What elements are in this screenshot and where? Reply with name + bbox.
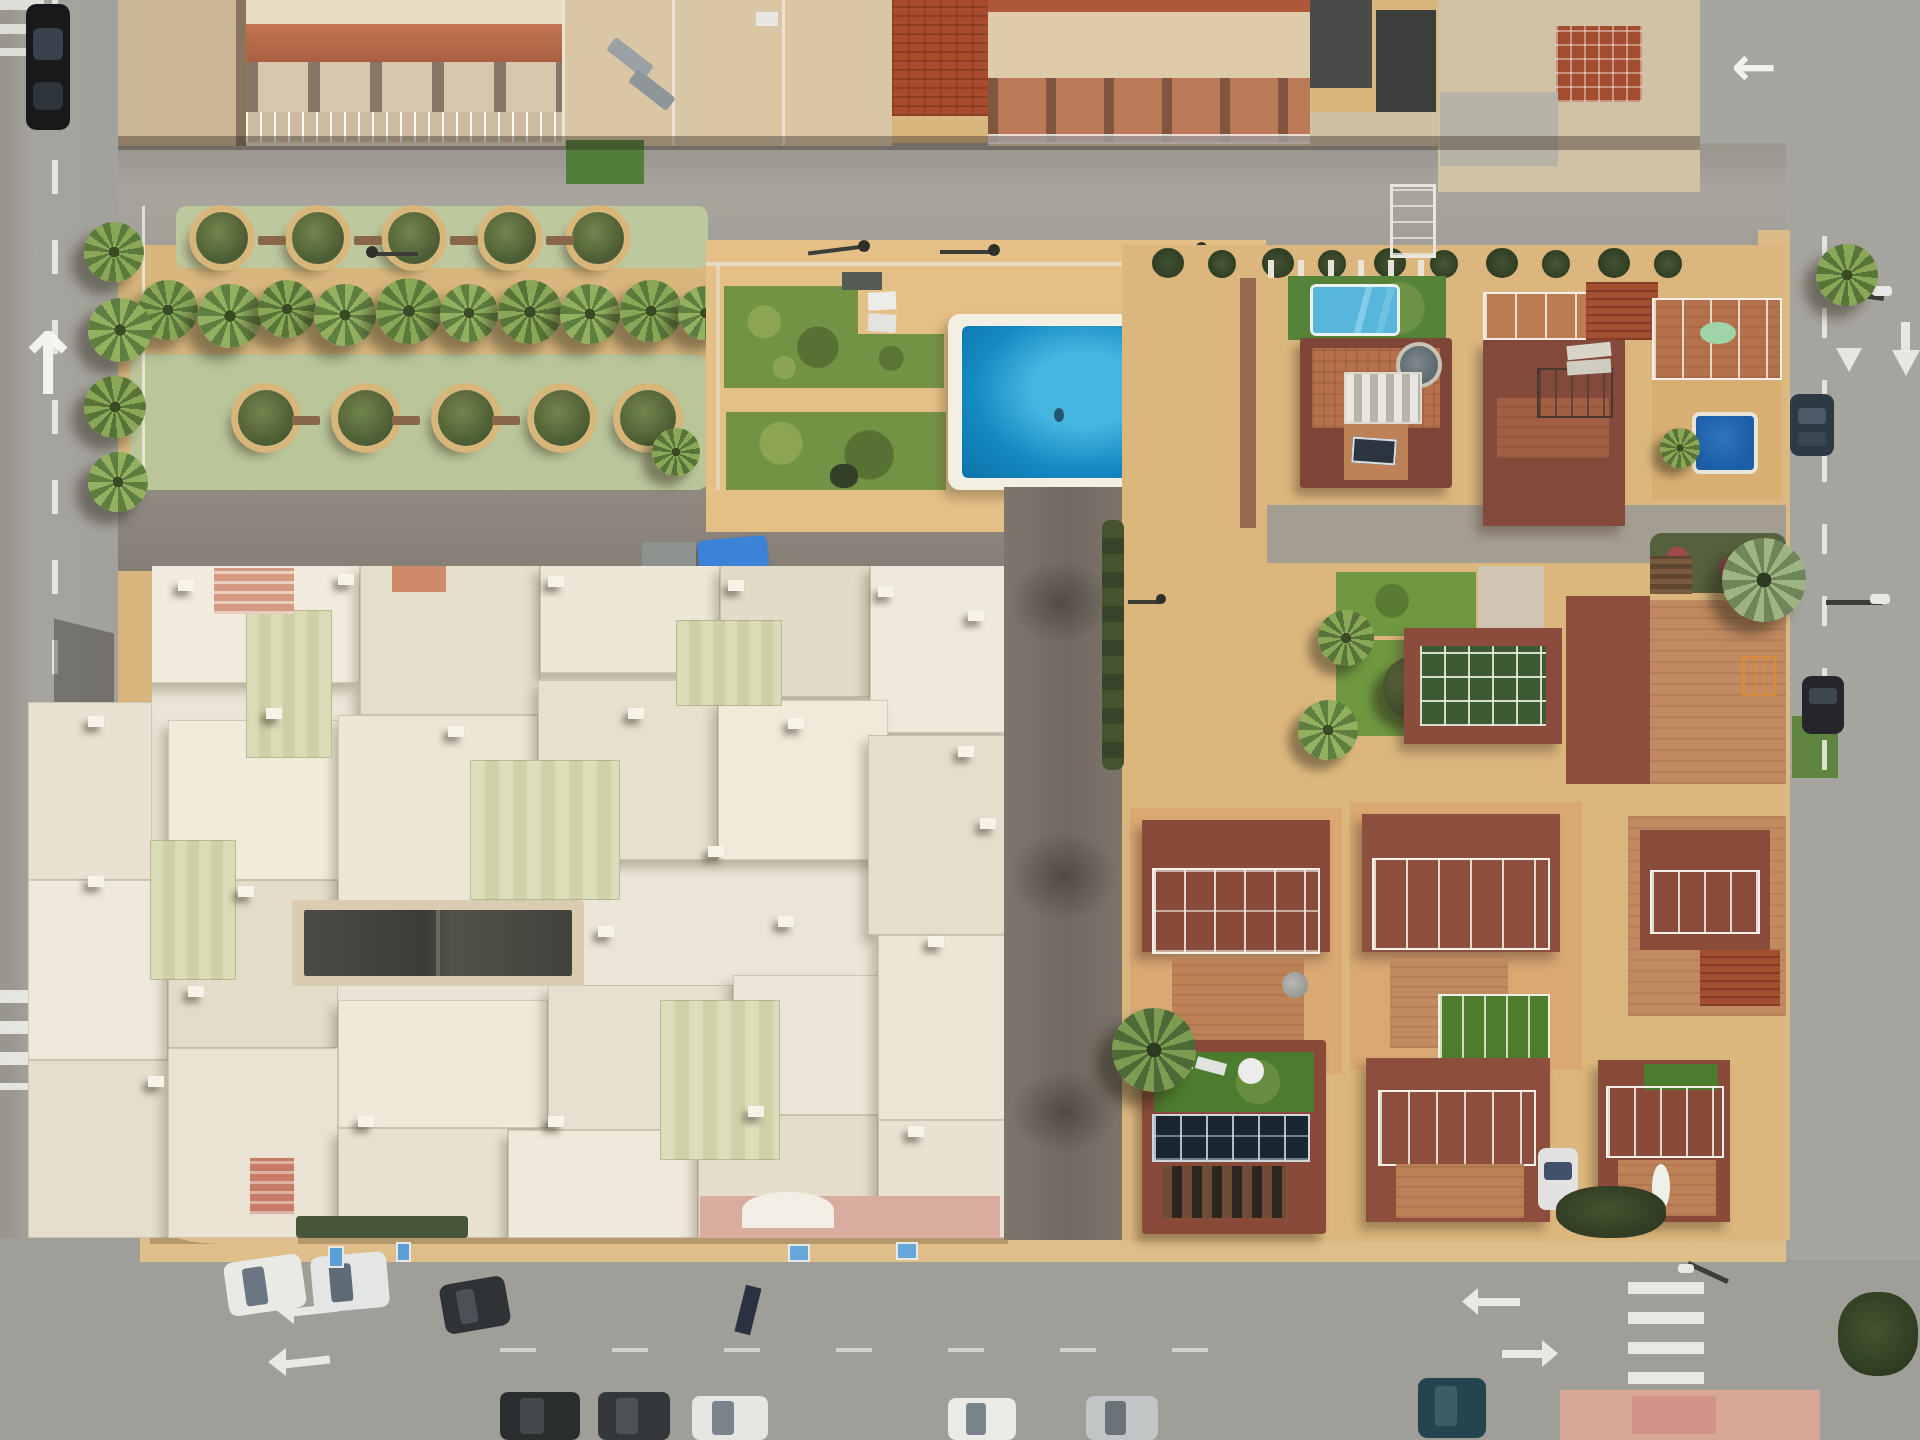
rooftop-terrace-top	[562, 0, 892, 146]
rooftop-ac-unit	[756, 12, 778, 26]
car-glass	[1798, 408, 1826, 424]
palm-tree	[652, 428, 700, 476]
car-dark-right-2	[1802, 676, 1844, 734]
roof-chimney	[148, 1076, 164, 1087]
villa1-slat-pergola	[1344, 372, 1422, 424]
skylight-panel	[676, 620, 782, 706]
palm-tree	[1816, 244, 1878, 306]
skylight-panel	[246, 610, 332, 758]
palm-tree	[88, 452, 148, 512]
stairwell-salmon	[214, 568, 294, 614]
lamp-head	[366, 246, 378, 258]
roof-panel	[360, 565, 540, 715]
solar-panel-array	[1152, 1114, 1310, 1162]
car-glass	[1809, 688, 1837, 704]
roof-chimney	[748, 1106, 764, 1117]
palm-tree	[1660, 428, 1700, 468]
garden-shed	[842, 272, 882, 290]
atrium-divider	[436, 910, 440, 976]
hedge-bush	[1486, 248, 1518, 278]
roof-chimney	[188, 986, 204, 997]
roof-panel	[338, 1000, 548, 1128]
roof-chimney	[598, 926, 614, 937]
villa-b4-grid	[1378, 1090, 1536, 1166]
villa-row3-right-grid	[1650, 870, 1760, 934]
roof-chimney	[778, 916, 794, 927]
palm-tree	[620, 280, 682, 342]
roof-chimney	[788, 718, 804, 729]
car-bottom-5	[1086, 1396, 1158, 1440]
olive-tree	[438, 390, 494, 446]
villa-row3-grid-1	[1152, 868, 1320, 954]
stairwell-salmon-small	[392, 564, 446, 592]
car-glass	[966, 1403, 986, 1435]
deck-fence-left	[716, 266, 720, 490]
roof-dark-2	[1376, 10, 1436, 112]
olive-tree	[238, 390, 294, 446]
lawn-upper-ext	[856, 334, 944, 388]
villa-row2-right-roof	[1566, 596, 1650, 784]
car-white-street-2	[310, 1251, 391, 1313]
palm-tree	[258, 280, 316, 338]
villa-garden-wall	[1240, 278, 1256, 528]
lamp-head-white	[1870, 594, 1890, 604]
roof-panel	[28, 880, 168, 1060]
building-top-d-patio	[1440, 92, 1558, 166]
villa-row2-court	[1420, 646, 1546, 726]
building-top-d-redpattern	[1556, 26, 1642, 102]
roof-chimney	[548, 1116, 564, 1127]
roof-chimney	[628, 708, 644, 719]
car-glass-rear	[1798, 432, 1826, 446]
villa-row3-grid-2	[1372, 858, 1550, 950]
villa-row3-right-redtile	[1700, 950, 1780, 1006]
villa2-rails	[1537, 368, 1613, 418]
roof-chimney	[178, 580, 194, 591]
garden-band-upper	[176, 206, 708, 268]
villa1-covered-pool	[1310, 284, 1400, 336]
roof-chimney	[928, 936, 944, 947]
villa3-blue-pool	[1692, 412, 1758, 474]
parking-sign-blue	[396, 1242, 411, 1262]
palm-tree	[560, 284, 620, 344]
lamp-head	[858, 240, 870, 252]
hedge-bush	[1208, 250, 1236, 278]
car-black-top-left	[26, 4, 70, 130]
hedge-bush	[1654, 250, 1682, 278]
roof-panel	[28, 702, 152, 880]
park-bench	[450, 236, 478, 245]
planter-hedge	[296, 1216, 468, 1238]
lawn-bush	[830, 464, 858, 488]
roof-chimney	[88, 716, 104, 727]
lamp-head-white	[1678, 1264, 1694, 1273]
hedge-bush	[1152, 248, 1184, 278]
palm-tree	[88, 298, 152, 362]
tree-shadow-path	[1010, 1070, 1118, 1154]
roof-chimney	[908, 1126, 924, 1137]
building-top-c-balconies	[988, 78, 1310, 142]
roof-chimney	[968, 610, 984, 621]
building-top-a	[118, 0, 244, 146]
crosswalk-bottom-right	[1628, 1282, 1704, 1388]
skylight-panel	[470, 760, 620, 900]
car-white-street-1	[223, 1253, 308, 1317]
roof-chimney	[980, 818, 996, 829]
roof-chimney	[358, 1116, 374, 1127]
villa2-red-tile-roof	[1586, 282, 1658, 340]
car-bottom-teal	[1418, 1378, 1486, 1438]
gate-white	[1390, 184, 1436, 258]
car-glass	[328, 1263, 353, 1303]
building-top-b-roofstrip	[246, 24, 562, 62]
car-glass	[455, 1288, 479, 1325]
olive-tree	[572, 212, 624, 264]
park-bench	[492, 416, 520, 425]
car-dark-right-1	[1790, 394, 1834, 456]
wood-pergola	[1650, 556, 1692, 594]
park-bench	[546, 236, 574, 245]
car-glass	[1435, 1386, 1457, 1426]
roof-panel	[868, 735, 1010, 935]
hedge-bush	[1542, 250, 1570, 278]
skylight-panel	[150, 840, 236, 980]
palm-tree	[314, 284, 376, 346]
roof-chimney	[238, 886, 254, 897]
roof-panel	[878, 935, 1010, 1120]
swimmer	[1054, 408, 1064, 422]
olive-tree	[292, 212, 344, 264]
roof-chimney	[266, 708, 282, 719]
palm-tree-silver	[1722, 538, 1806, 622]
palm-tree	[498, 280, 562, 344]
giveway-arrow-stem	[1901, 322, 1910, 352]
olive-tree	[534, 390, 590, 446]
palm-tree	[198, 284, 262, 348]
skylight-panel	[660, 1000, 780, 1160]
palm-tree	[376, 278, 442, 344]
roof-chimney	[548, 576, 564, 587]
roof-chimney	[878, 586, 894, 597]
palm-tree	[84, 376, 146, 438]
road-arrow-top-right: ←	[1722, 38, 1786, 96]
lamp-head	[1156, 594, 1166, 604]
villa3-mint-table	[1700, 322, 1736, 344]
car-glass	[616, 1398, 638, 1434]
villa-b5-grid	[1606, 1086, 1724, 1158]
roof-panel	[28, 1060, 188, 1238]
villa-row2-orange-rails	[1742, 656, 1776, 696]
road-arrow-left-road: ↑	[12, 316, 62, 412]
villa-b4-terrace	[1396, 1164, 1524, 1218]
park-bench	[292, 416, 320, 425]
car-glass	[520, 1398, 544, 1434]
park-bench	[258, 236, 286, 245]
container-gray	[642, 542, 696, 570]
top-band-shadow	[118, 136, 1700, 150]
olive-tree	[388, 212, 440, 264]
parking-sign-blue	[896, 1242, 918, 1260]
car-bottom-3	[692, 1396, 768, 1440]
car-bottom-2	[598, 1392, 670, 1440]
car-glass-rear	[33, 82, 63, 110]
park-bench	[354, 236, 382, 245]
pavement-pink-cross	[1632, 1396, 1716, 1434]
palm-tree	[1318, 610, 1374, 666]
roof-chimney	[88, 876, 104, 887]
tree-shadow-path	[1008, 560, 1112, 644]
palm-tree	[440, 284, 498, 342]
roof-chimney	[338, 574, 354, 585]
sun-lounger-1	[868, 291, 897, 310]
car-glass	[1105, 1401, 1126, 1435]
car-glass	[242, 1266, 269, 1307]
lamp-pole	[1128, 600, 1160, 604]
entrance-canopy	[742, 1192, 834, 1228]
roof-red-tiles-top	[892, 0, 988, 116]
villa1-heater	[1351, 436, 1397, 465]
building-top-b-windows	[246, 62, 562, 112]
parking-divider-dashes	[500, 1348, 1250, 1352]
roof-chimney	[958, 746, 974, 757]
park-bench	[392, 416, 420, 425]
roof-dark-1	[1310, 0, 1372, 88]
apartment-building-white	[28, 520, 1010, 1238]
car-bottom-4	[948, 1398, 1016, 1440]
car-bottom-1	[500, 1392, 580, 1440]
tree-shadow-path	[1008, 830, 1118, 922]
hedge-path-side	[1102, 520, 1124, 770]
villa-row3-court-green	[1438, 994, 1550, 1066]
palm-tree	[84, 222, 144, 282]
scene: ↑←	[0, 0, 1920, 1440]
bush-corner-right	[1838, 1292, 1918, 1376]
palm-tree	[1298, 700, 1358, 760]
street-arrow-4-stem	[1502, 1350, 1544, 1358]
lamp-pole	[374, 252, 418, 256]
building-top-c-rededge	[988, 0, 1310, 12]
palm-tree-large	[1112, 1008, 1196, 1092]
olive-tree	[484, 212, 536, 264]
bush-dark	[1556, 1186, 1666, 1238]
stair-red	[250, 1158, 294, 1214]
olive-tree	[196, 212, 248, 264]
car-glass	[33, 28, 63, 60]
hedge-bush	[1598, 248, 1630, 278]
building-top-a-shade	[236, 0, 246, 146]
parking-sign-blue	[788, 1244, 810, 1262]
sun-lounger-2	[867, 313, 896, 333]
parking-sign-blue	[328, 1246, 344, 1268]
lawn-upper	[724, 286, 858, 388]
turf-umbrella	[1238, 1058, 1264, 1084]
car-glass	[712, 1401, 734, 1435]
car-glass	[1544, 1162, 1572, 1180]
satellite-dish	[1282, 972, 1308, 998]
lamp-pole	[940, 250, 992, 254]
street-arrow-3-stem	[1478, 1298, 1520, 1306]
olive-tree	[338, 390, 394, 446]
roof-chimney	[728, 580, 744, 591]
lamp-head	[988, 244, 1000, 256]
roof-chimney	[448, 726, 464, 737]
slat-pergola-dark	[1162, 1166, 1286, 1218]
roof-chimney	[708, 846, 724, 857]
